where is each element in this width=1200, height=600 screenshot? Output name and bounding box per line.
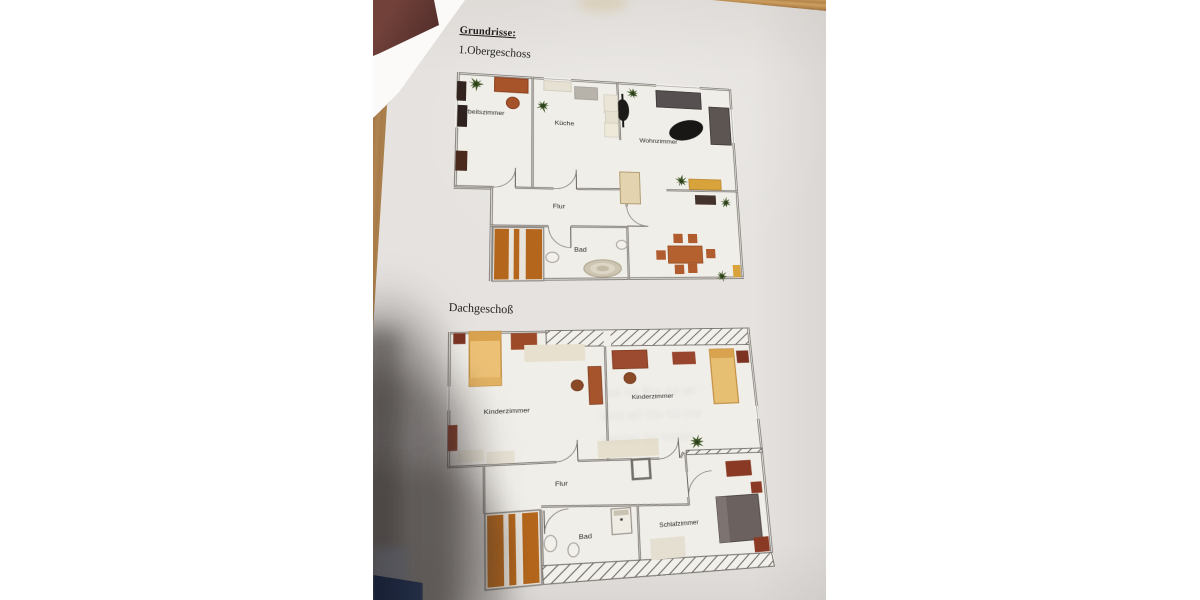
svg-text:Flur: Flur <box>553 203 566 210</box>
svg-text:Bad: Bad <box>579 533 593 542</box>
svg-text:Bad: Bad <box>574 247 587 254</box>
svg-text:Küche: Küche <box>555 120 575 127</box>
svg-text:Flur: Flur <box>555 480 569 488</box>
